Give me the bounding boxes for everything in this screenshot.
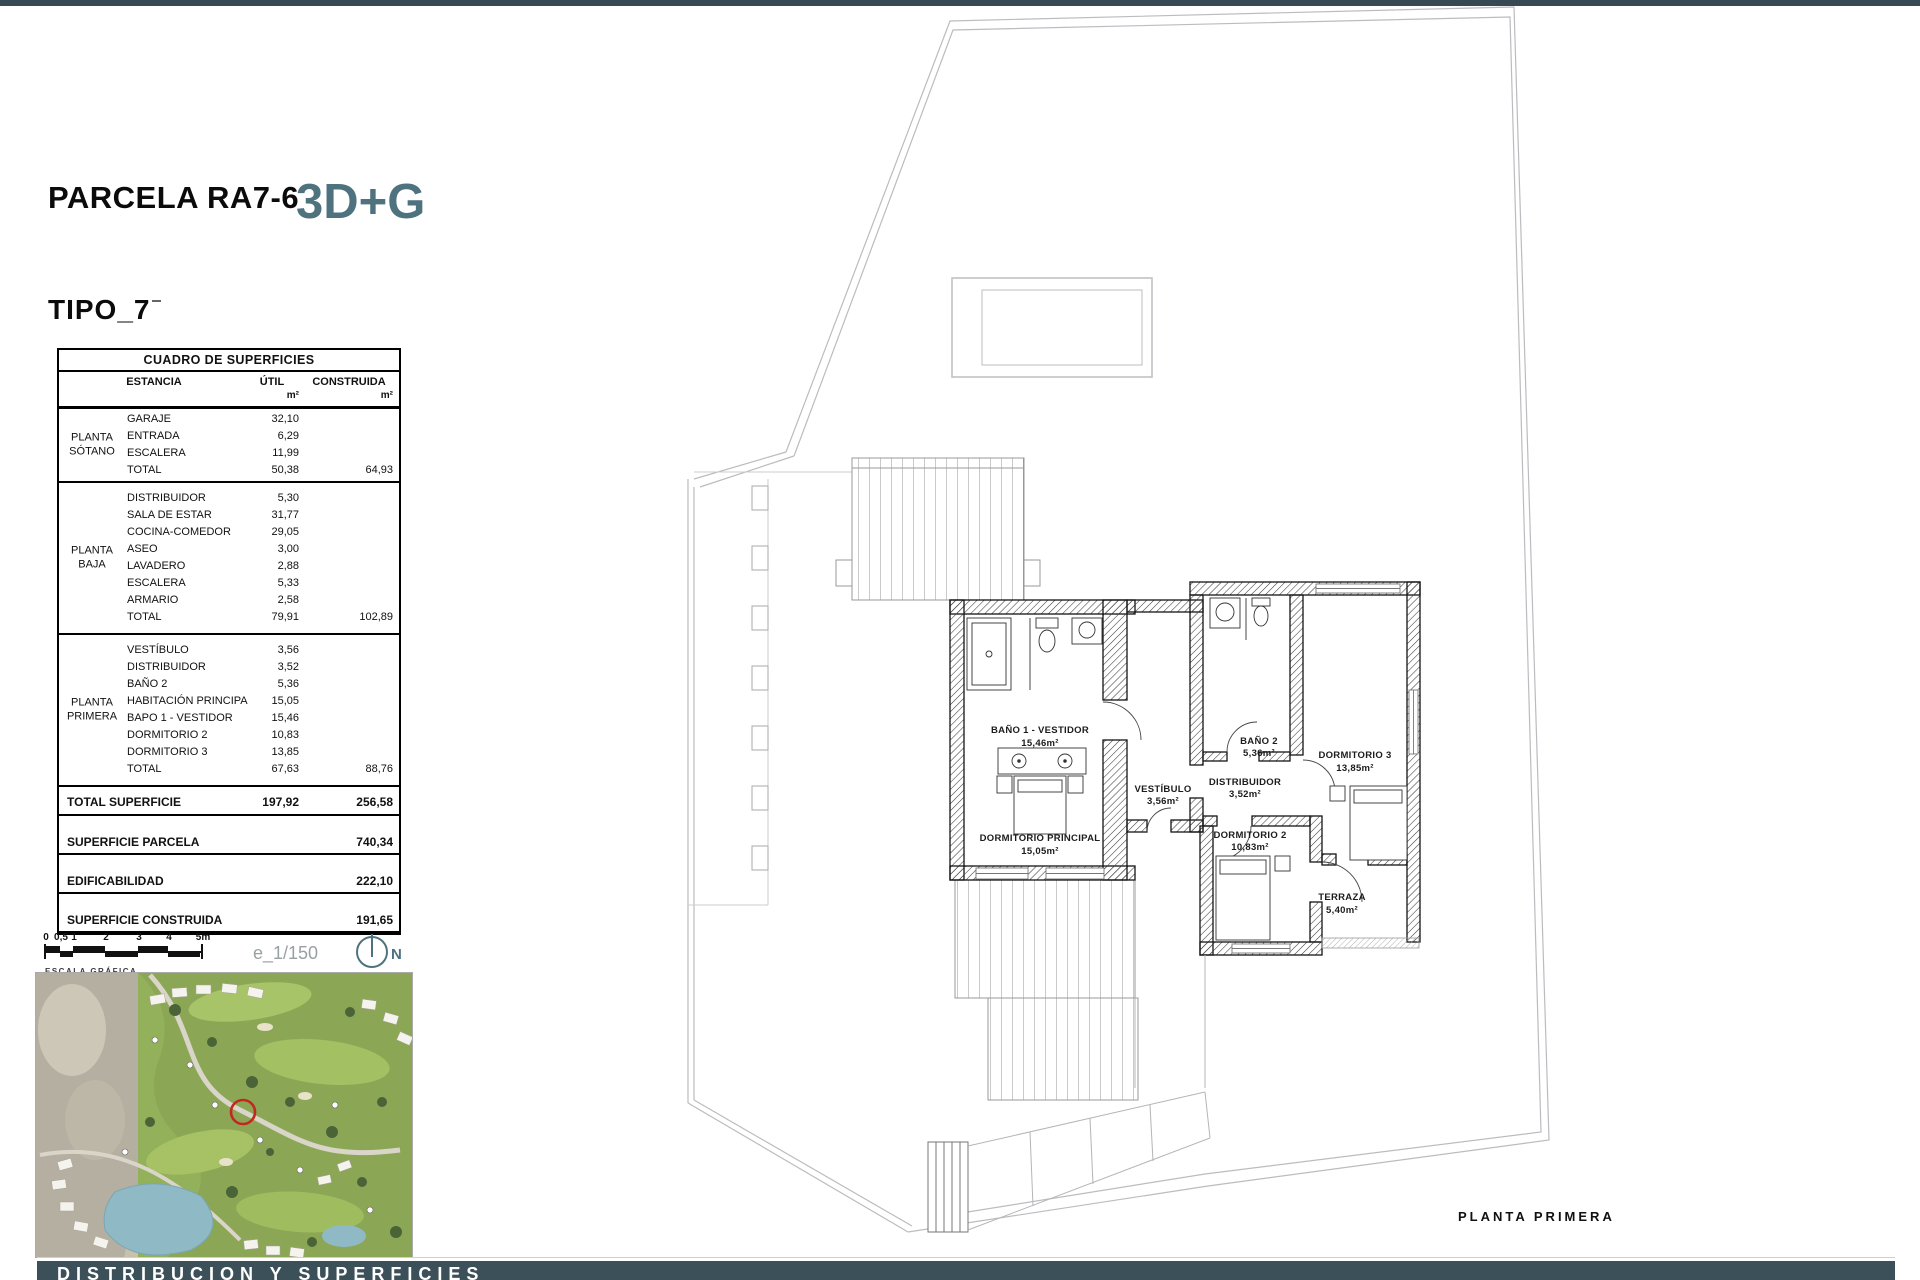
scale-ratio: e_1/150 [253, 943, 318, 964]
room-label: TERRAZA [1318, 892, 1366, 903]
room-area: 5,40m² [1326, 905, 1358, 916]
room-label: VESTÍBULO [1134, 784, 1191, 795]
retaining-wall-steps [688, 472, 852, 905]
room-label: BAÑO 1 - VESTIDOR [991, 725, 1089, 736]
room-area: 5,36m² [1243, 748, 1275, 759]
lower-deck [955, 880, 1138, 1100]
room-area: 15,46m² [1021, 738, 1058, 749]
room-label: DORMITORIO PRINCIPAL [980, 833, 1101, 844]
site-map [35, 972, 413, 1258]
plan-caption: PLANTA PRIMERA [1458, 1209, 1615, 1224]
footer-divider [37, 1257, 1895, 1258]
north-compass-icon: N [357, 934, 402, 967]
room-area: 3,56m² [1147, 796, 1179, 807]
drawing-canvas: 0 0,5 1 2 3 4 5m ESCALA GRÁFICA e_1/150 … [0, 0, 1920, 1280]
room-area: 13,85m² [1336, 763, 1373, 774]
floor-plan: BAÑO 1 - VESTIDOR 15,46m² VESTÍBULO 3,56… [836, 458, 1615, 1232]
upper-deck [836, 458, 1040, 600]
scale-tick: 4 [166, 932, 172, 943]
terrace-sill [1322, 938, 1419, 948]
room-label: DORMITORIO 3 [1318, 750, 1391, 761]
scale-tick: 0 [43, 932, 49, 943]
footer-bar: DISTRIBUCION Y SUPERFICIES [37, 1261, 1895, 1280]
room-area: 10,83m² [1231, 842, 1268, 853]
north-label: N [391, 946, 402, 963]
plan-sheet: PARCELA RA7-6 3D+G TIPO_7 CUADRO DE SUPE… [0, 0, 1920, 1280]
room-area: 3,52m² [1229, 789, 1261, 800]
scale-tick: 5m [196, 932, 211, 943]
scale-bar: 0 0,5 1 2 3 4 5m ESCALA GRÁFICA [43, 932, 210, 976]
scale-tick: 2 [103, 932, 109, 943]
scale-tick: 0,5 [54, 932, 68, 943]
room-label: DISTRIBUIDOR [1209, 777, 1281, 788]
pool [952, 278, 1152, 377]
room-label: BAÑO 2 [1240, 736, 1278, 747]
scale-tick: 3 [136, 932, 142, 943]
exterior-stairs [928, 1142, 968, 1232]
room-area: 15,05m² [1021, 846, 1058, 857]
footer-title: DISTRIBUCION Y SUPERFICIES [37, 1261, 1895, 1280]
room-label: DORMITORIO 2 [1213, 830, 1286, 841]
scale-tick: 1 [71, 932, 77, 943]
